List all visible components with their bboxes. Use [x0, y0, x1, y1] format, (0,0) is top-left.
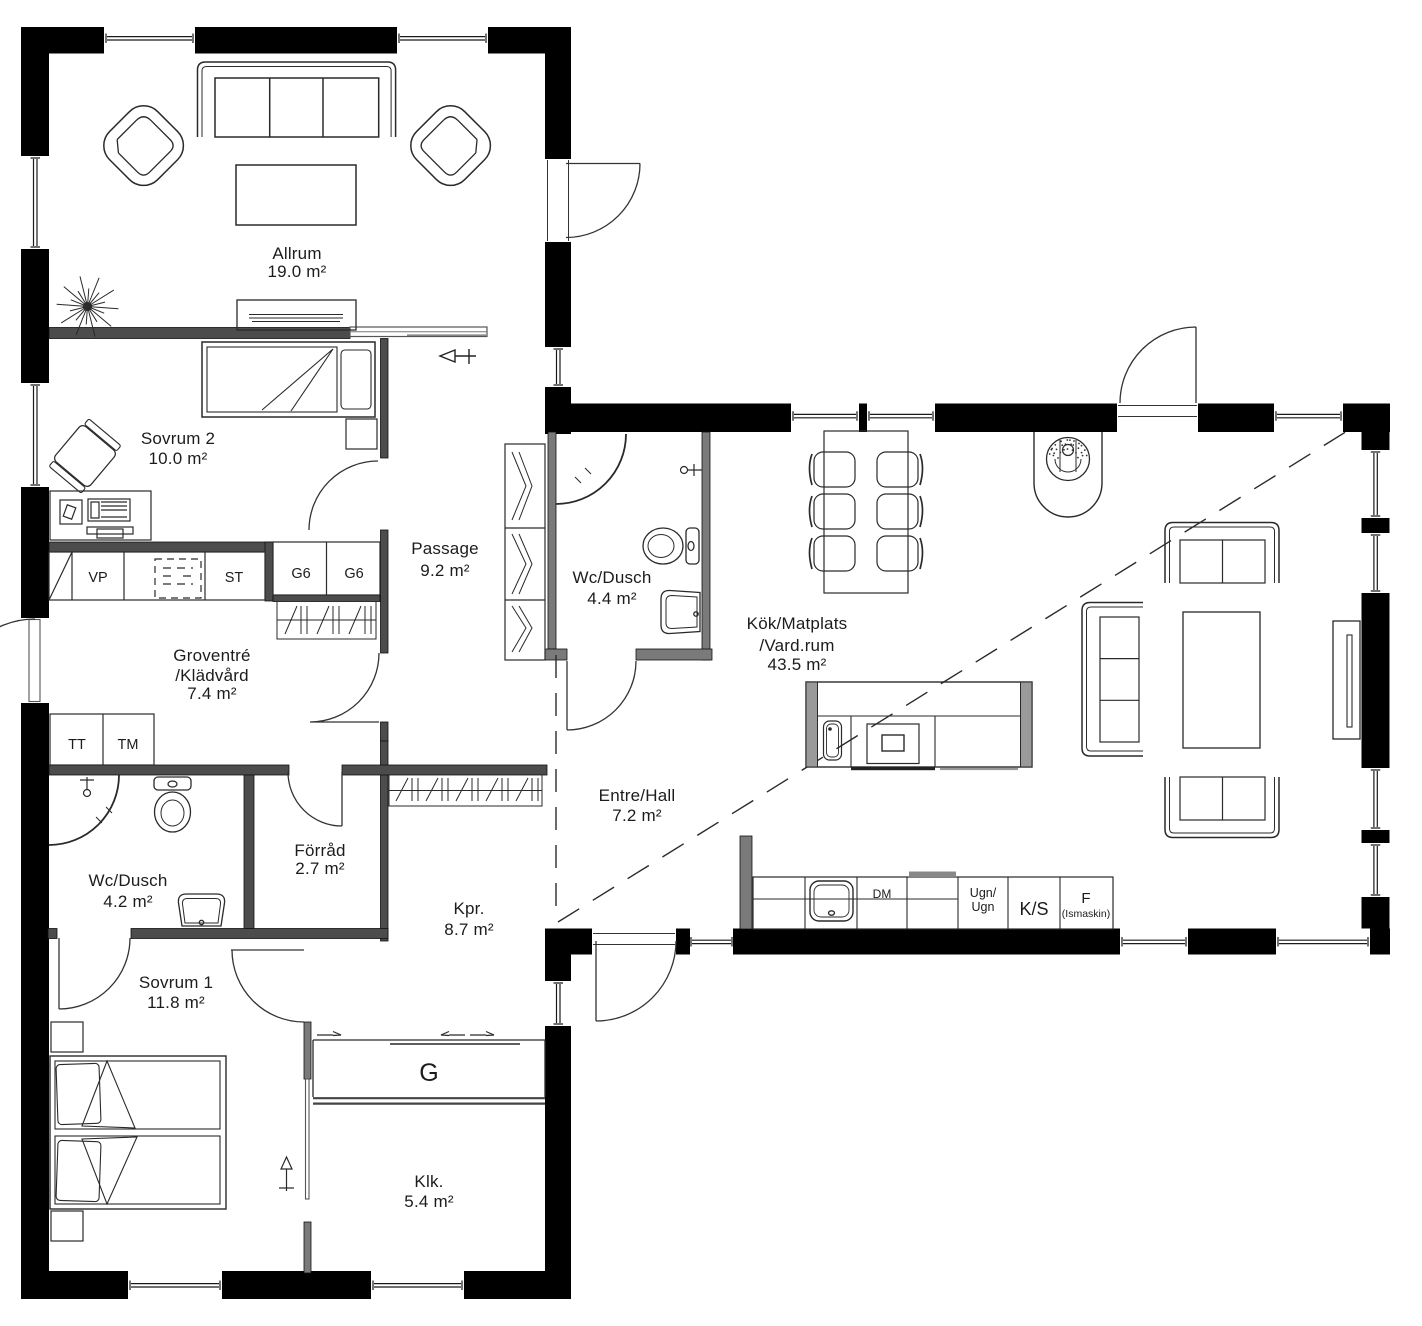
- svg-text:ST: ST: [225, 570, 244, 586]
- svg-text:Wc/Dusch: Wc/Dusch: [572, 568, 651, 587]
- svg-text:8.7 m²: 8.7 m²: [444, 920, 494, 939]
- svg-text:11.8 m²: 11.8 m²: [147, 993, 205, 1012]
- svg-text:2.7 m²: 2.7 m²: [295, 859, 345, 878]
- svg-text:Sovrum 1: Sovrum 1: [139, 973, 213, 992]
- svg-text:Wc/Dusch: Wc/Dusch: [88, 871, 167, 890]
- svg-text:Förråd: Förråd: [294, 841, 345, 860]
- svg-text:Ugn: Ugn: [972, 900, 995, 914]
- svg-text:Klk.: Klk.: [414, 1172, 443, 1191]
- svg-text:VP: VP: [88, 570, 107, 586]
- svg-text:/Klädvård: /Klädvård: [175, 666, 249, 685]
- svg-text:/Vard.rum: /Vard.rum: [759, 636, 834, 655]
- svg-text:7.4 m²: 7.4 m²: [187, 684, 237, 703]
- svg-text:Kök/Matplats: Kök/Matplats: [747, 614, 848, 633]
- svg-text:Ugn/: Ugn/: [970, 886, 997, 900]
- svg-text:Sovrum 2: Sovrum 2: [141, 429, 215, 448]
- svg-text:F: F: [1081, 890, 1090, 907]
- svg-text:Passage: Passage: [411, 539, 479, 558]
- svg-text:TM: TM: [118, 737, 139, 753]
- svg-text:43.5 m²: 43.5 m²: [767, 655, 826, 674]
- svg-text:G6: G6: [344, 566, 363, 582]
- svg-text:K/S: K/S: [1019, 899, 1048, 919]
- svg-text:DM: DM: [873, 887, 892, 901]
- svg-text:4.4 m²: 4.4 m²: [587, 589, 637, 608]
- svg-text:G: G: [419, 1059, 438, 1087]
- svg-text:(Ismaskin): (Ismaskin): [1062, 908, 1110, 920]
- svg-text:4.2 m²: 4.2 m²: [103, 892, 153, 911]
- svg-text:7.2 m²: 7.2 m²: [612, 806, 662, 825]
- svg-text:10.0 m²: 10.0 m²: [148, 449, 207, 468]
- svg-text:19.0 m²: 19.0 m²: [267, 262, 326, 281]
- svg-text:TT: TT: [68, 737, 86, 753]
- svg-text:Kpr.: Kpr.: [453, 899, 484, 918]
- svg-text:Entre/Hall: Entre/Hall: [599, 786, 676, 805]
- svg-text:G6: G6: [291, 566, 310, 582]
- svg-text:Groventré: Groventré: [173, 646, 250, 665]
- svg-text:Allrum: Allrum: [272, 244, 321, 263]
- svg-text:9.2 m²: 9.2 m²: [420, 561, 470, 580]
- svg-text:5.4 m²: 5.4 m²: [404, 1192, 454, 1211]
